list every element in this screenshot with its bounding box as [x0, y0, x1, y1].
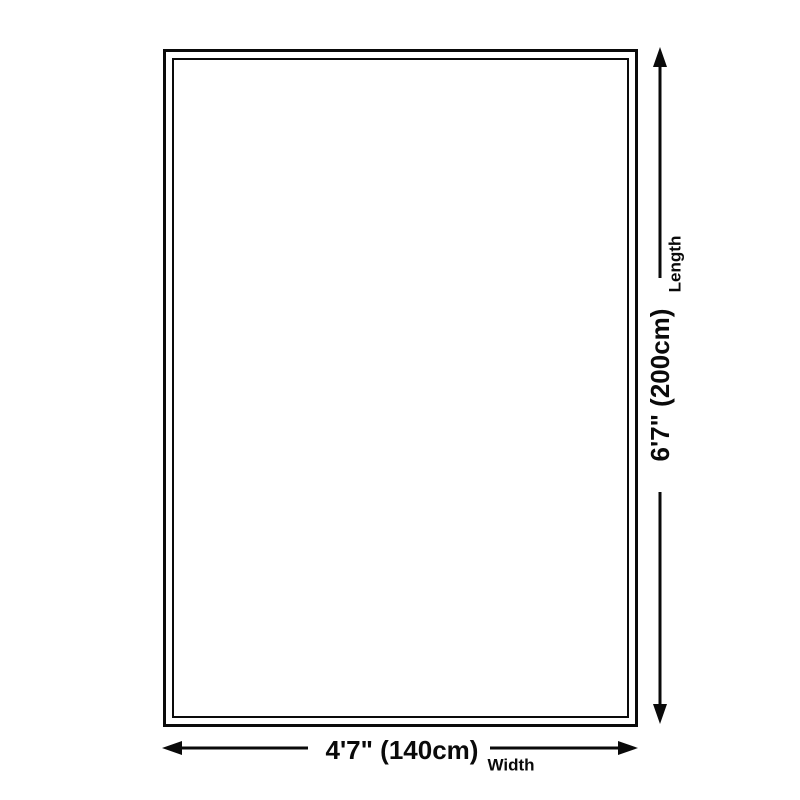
- arrowhead-up-icon: [653, 47, 667, 67]
- width-value: 4'7" (140cm): [326, 737, 479, 763]
- rug-outline: [163, 49, 638, 727]
- length-value: 6'7" (200cm): [647, 309, 673, 462]
- width-label: Width: [487, 757, 534, 774]
- length-label: Length: [667, 236, 684, 293]
- arrowhead-right-icon: [618, 741, 638, 755]
- rug-inner-outline: [172, 58, 629, 718]
- dimension-diagram: 6'7" (200cm) Length 4'7" (140cm) Width: [0, 0, 800, 800]
- arrowhead-left-icon: [162, 741, 182, 755]
- arrowhead-down-icon: [653, 704, 667, 724]
